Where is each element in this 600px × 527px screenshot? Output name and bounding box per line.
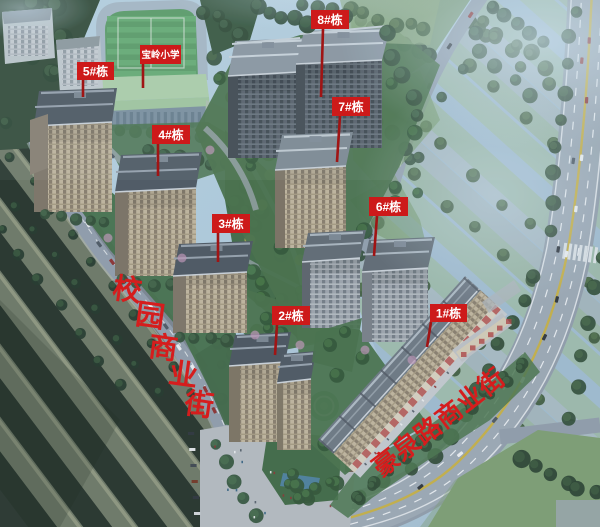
svg-text:2#栋: 2#栋: [278, 308, 303, 323]
svg-text:1#栋: 1#栋: [436, 305, 461, 320]
svg-text:3#栋: 3#栋: [218, 216, 243, 231]
svg-text:园: 园: [134, 299, 167, 335]
svg-text:7#栋: 7#栋: [338, 99, 363, 114]
svg-text:4#栋: 4#栋: [158, 127, 183, 142]
svg-text:8#栋: 8#栋: [317, 12, 342, 27]
svg-text:街: 街: [182, 386, 216, 424]
svg-text:宝岭小学: 宝岭小学: [141, 49, 180, 61]
svg-text:6#栋: 6#栋: [376, 199, 401, 214]
svg-text:5#栋: 5#栋: [83, 63, 108, 78]
